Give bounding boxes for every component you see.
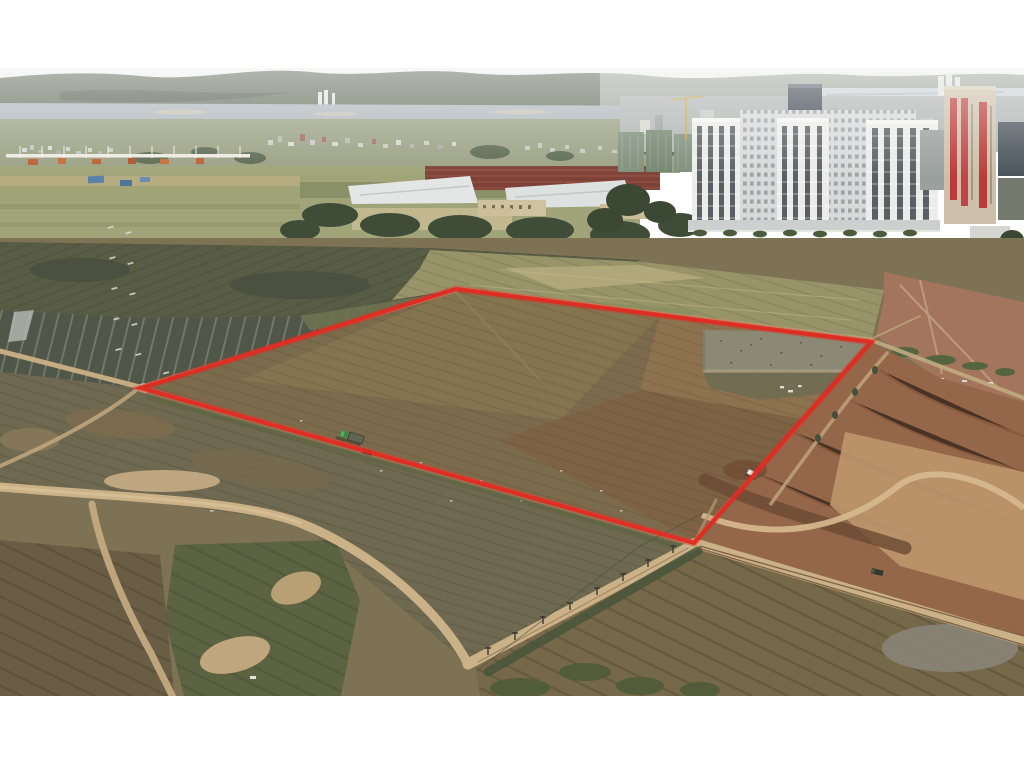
white-debris [250,676,256,679]
letterbox-top [0,0,1024,68]
field-row [0,204,300,209]
complex-wall [688,220,940,237]
photo-area [0,68,1024,700]
letterbox-bottom [0,696,1024,768]
aerial-photo [0,0,1024,768]
sand-bar-top [104,470,220,492]
atmospheric-haze [0,68,1024,178]
screenshot-canvas [0,0,1024,768]
bare-patch [0,428,60,452]
